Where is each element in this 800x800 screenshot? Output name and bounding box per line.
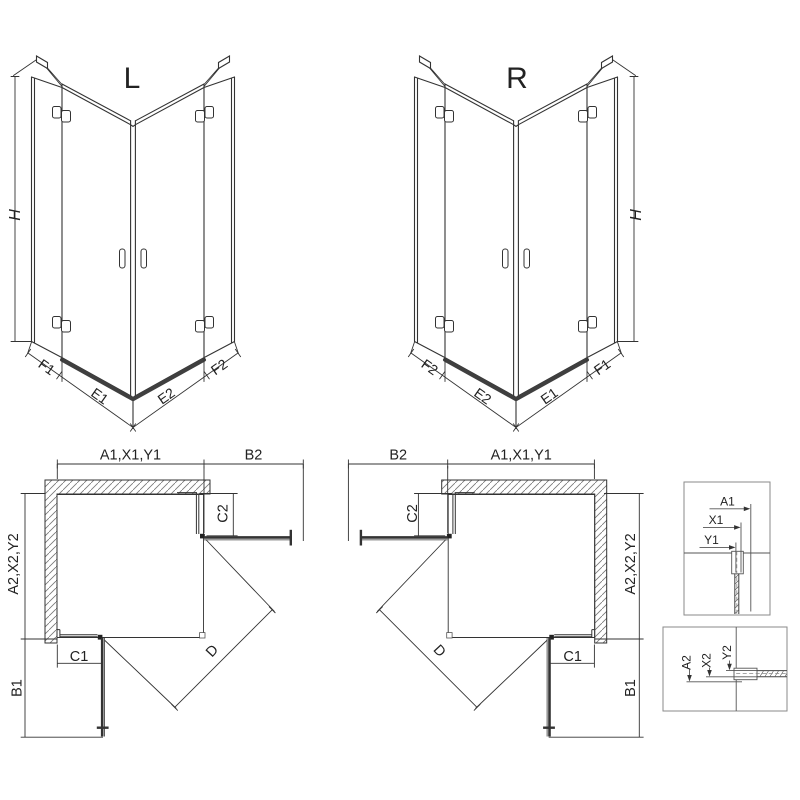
iso-right-dim-h: H	[628, 209, 645, 221]
iso-left-title: L	[124, 62, 141, 95]
plan-left-dim-b2: B2	[245, 448, 263, 464]
plan-right-dim-a2: A2,X2,Y2	[623, 533, 639, 594]
plan-right-dim-a1: A1,X1,Y1	[491, 448, 552, 464]
detail-box-a2: A2 X2 Y2	[663, 627, 787, 711]
plan-left-dim-d: D	[203, 642, 222, 661]
detail-dim-a1: A1	[720, 495, 735, 509]
detail-dim-x1: X1	[709, 513, 724, 527]
plan-right-dim-c2: C2	[405, 504, 421, 523]
iso-left-dim-e1: E1	[88, 384, 111, 407]
plan-right-dim-c1: C1	[563, 649, 582, 665]
iso-right-dim-e2: E2	[471, 384, 494, 407]
detail-dim-a2: A2	[680, 655, 694, 670]
iso-view-left: L H F1 E1 E2 F2	[7, 56, 241, 431]
drawing-canvas: L H F1 E1 E2 F2 R H F2 E2 E1 F1 A1,X1,Y1…	[0, 0, 800, 800]
iso-left-dim-f1: F1	[36, 356, 59, 379]
plan-left-wall-side-hatch	[45, 494, 57, 643]
plan-left-dim-a2: A2,X2,Y2	[6, 533, 22, 594]
plan-left-dim-a1: A1,X1,Y1	[100, 448, 161, 464]
iso-view-right: R H F2 E2 E1 F1	[408, 56, 645, 431]
plan-left-wall-top-hatch	[45, 480, 210, 494]
iso-left-dim-h: H	[7, 209, 24, 221]
shower-enclosure-technical-drawing: L H F1 E1 E2 F2 R H F2 E2 E1 F1 A1,X1,Y1…	[0, 0, 800, 800]
plan-left-geometry	[45, 460, 303, 737]
plan-view-left: A1,X1,Y1 B2 C2 A2,X2,Y2 C1 B1 D	[6, 448, 303, 738]
detail-dim-x2: X2	[700, 653, 714, 668]
iso-right-dim-f1: F1	[591, 356, 614, 379]
plan-left-dim-b1: B1	[10, 679, 26, 697]
iso-left-dim-f2: F2	[208, 356, 231, 379]
plan-view-right: B2 A1,X1,Y1 C2 A2,X2,Y2 C1 B1 D	[348, 448, 643, 738]
detail-dim-y1: Y1	[704, 533, 719, 547]
plan-right-wall-top-hatch	[442, 480, 607, 494]
plan-left-dim-c2: C2	[216, 504, 232, 523]
plan-left-dim-line-a2-b1	[21, 494, 103, 738]
iso-right-title: R	[506, 62, 528, 95]
iso-right-dim-e1: E1	[538, 384, 561, 407]
detail-a1-arrowheads	[729, 507, 750, 550]
plan-left-dim-c1: C1	[70, 649, 89, 665]
plan-right-dim-d: D	[430, 642, 449, 661]
plan-right-dim-b1: B1	[623, 679, 639, 697]
plan-right-geometry	[348, 460, 606, 737]
plan-right-dim-b2: B2	[389, 448, 407, 464]
iso-left-dim-e2: E2	[155, 384, 178, 407]
plan-right-wall-side-hatch	[595, 494, 607, 643]
detail-dim-y2: Y2	[720, 645, 734, 660]
detail-box-a1: A1 X1 Y1	[684, 482, 770, 615]
iso-right-dim-f2: F2	[419, 356, 442, 379]
